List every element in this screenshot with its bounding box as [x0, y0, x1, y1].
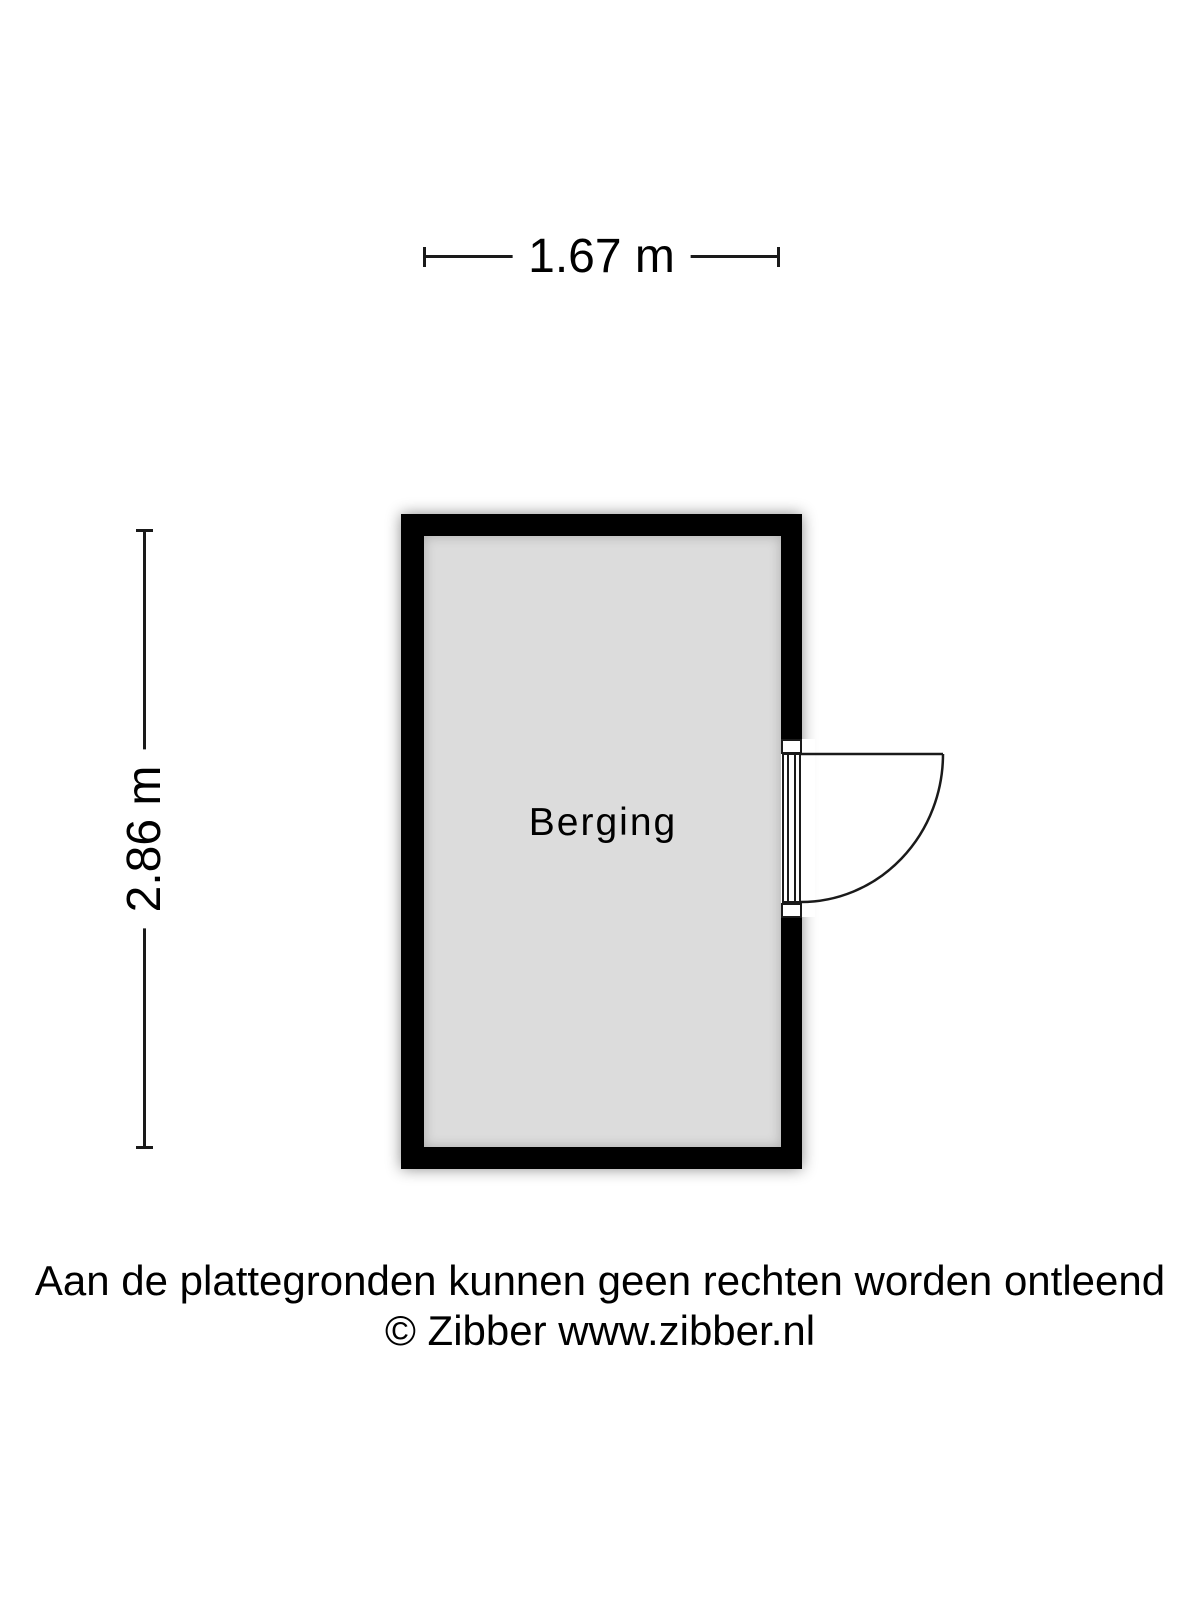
width-dimension: 1.67 m [423, 240, 780, 274]
floorplan-canvas: 1.67 m 2.86 m Berging Aan de plattegrond… [0, 0, 1200, 1600]
door-leaf-panel [787, 755, 796, 901]
footer-copyright: © Zibber www.zibber.nl [0, 1306, 1200, 1356]
height-dimension-tick-top [136, 529, 153, 532]
room-label: Berging [425, 800, 781, 846]
height-dimension: 2.86 m [136, 529, 154, 1149]
width-dimension-label: 1.67 m [512, 237, 691, 277]
width-dimension-tick-right [777, 247, 780, 267]
width-dimension-tick-left [423, 247, 426, 267]
height-dimension-label: 2.86 m [125, 750, 165, 929]
footer-disclaimer: Aan de plattegronden kunnen geen rechten… [0, 1256, 1200, 1306]
height-dimension-tick-bottom [136, 1146, 153, 1149]
footer: Aan de plattegronden kunnen geen rechten… [0, 1256, 1200, 1356]
door-swing-arc-icon [799, 744, 953, 914]
